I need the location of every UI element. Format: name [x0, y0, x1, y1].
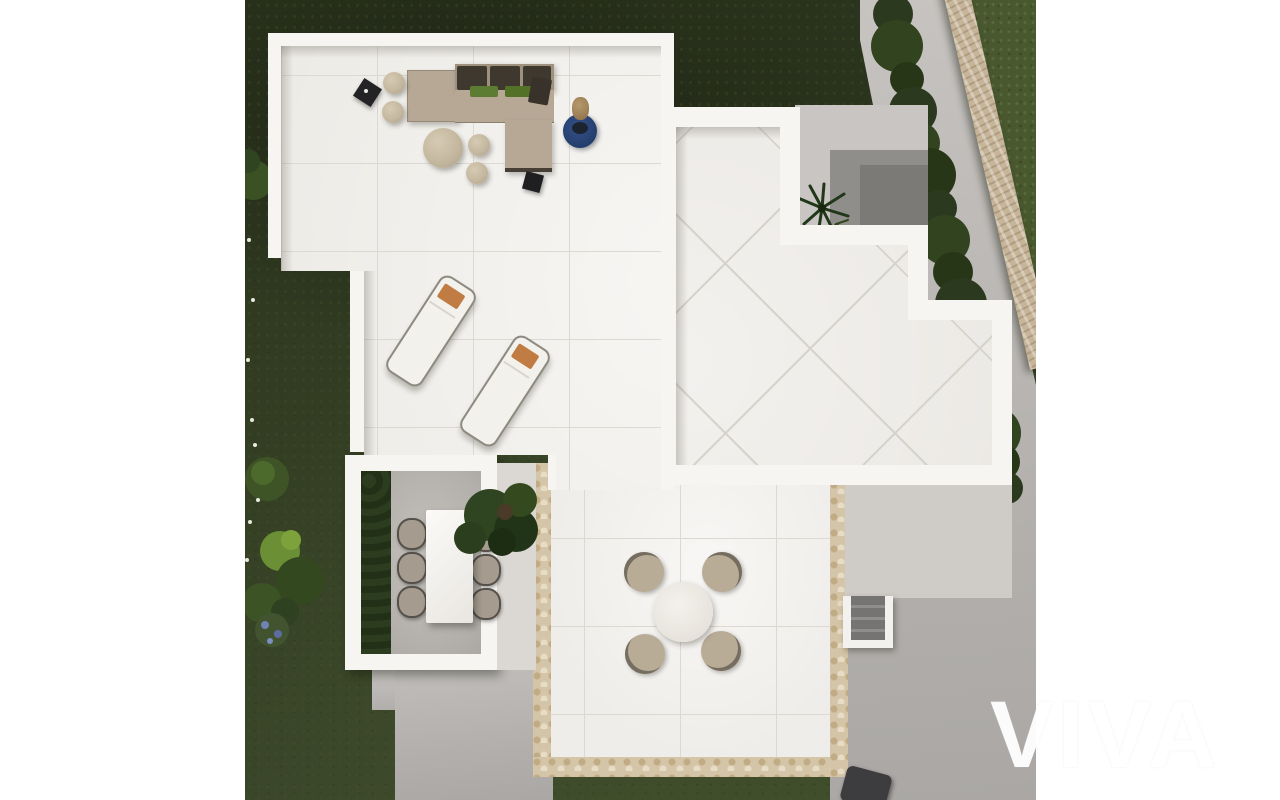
sofa-chaise-right — [505, 120, 552, 172]
terrace-edge-shadow — [281, 46, 661, 58]
roof-edge-shadow — [676, 127, 688, 465]
bistro-chair — [702, 552, 742, 592]
render-canvas: VIVA — [0, 0, 1280, 800]
round-bistro-table — [653, 582, 713, 642]
round-coffee-table — [423, 128, 463, 168]
pouf — [468, 134, 490, 156]
green-pillow — [470, 86, 498, 97]
dining-chair — [471, 588, 501, 620]
side-terrace-patch — [845, 485, 1012, 598]
patio-hedge — [361, 471, 391, 654]
dining-chair — [397, 586, 427, 618]
pouf — [466, 162, 488, 184]
watermark: VIVA — [990, 688, 1221, 783]
stone-trim-bottom — [533, 757, 848, 777]
side-table-decor — [364, 89, 368, 93]
decorative-bust — [572, 97, 589, 120]
staircase-steps — [851, 596, 885, 640]
pouf — [382, 101, 404, 123]
sofa-chaise-left — [407, 70, 459, 122]
roof-edge-shadow — [676, 127, 780, 139]
dining-chair — [397, 518, 427, 550]
potted-plant — [450, 478, 560, 568]
bistro-chair — [624, 552, 664, 592]
lounger-pillow — [437, 283, 466, 309]
bistro-chair — [701, 631, 741, 671]
pouf — [383, 72, 405, 94]
bust-shoulders — [572, 122, 588, 134]
bistro-chair — [625, 634, 665, 674]
lounger-pillow — [511, 343, 540, 369]
dining-chair — [397, 552, 427, 584]
aerial-render-photo — [245, 0, 1036, 800]
terrace-edge-shadow — [281, 46, 293, 271]
terrace-edge-shadow — [364, 271, 376, 455]
